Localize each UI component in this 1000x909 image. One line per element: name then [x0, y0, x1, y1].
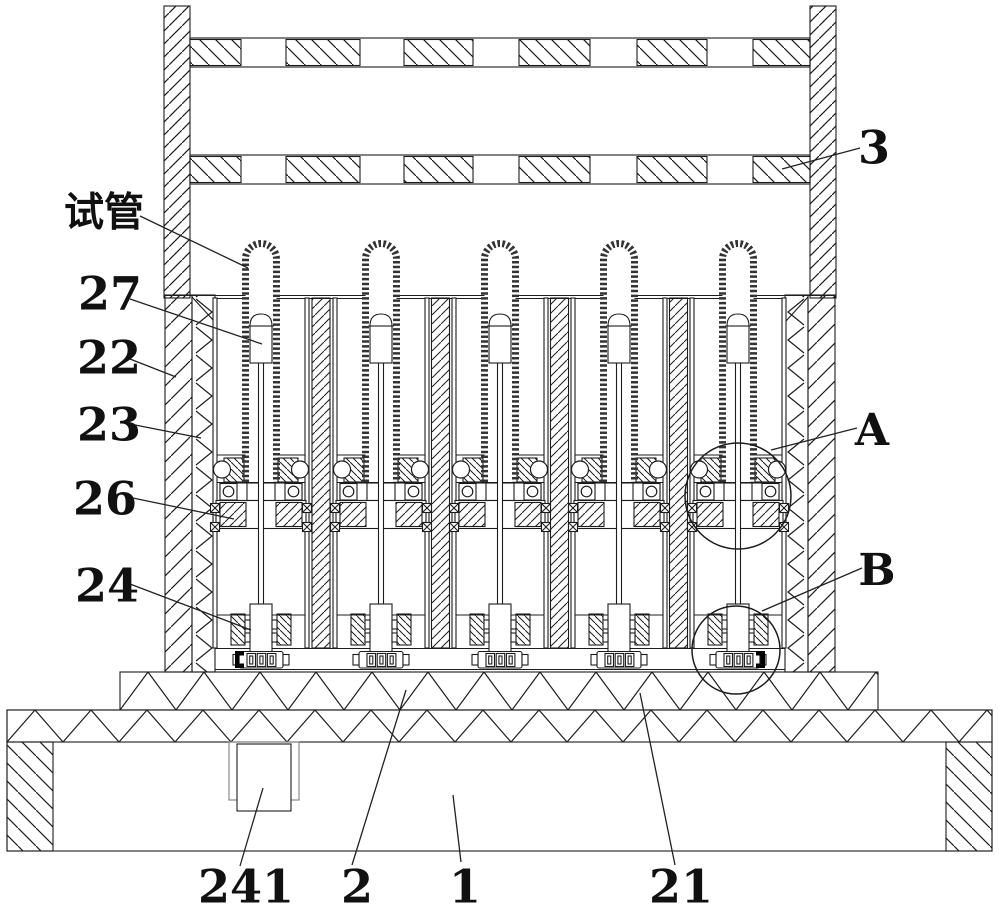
piston-rod: [379, 362, 384, 605]
drive-side-block: [589, 614, 603, 645]
piston-cap: [489, 314, 511, 326]
piston-body: [250, 326, 272, 363]
roller-ball: [214, 461, 231, 478]
roller-ball: [412, 461, 429, 478]
compartment-divider: [551, 298, 569, 648]
crossbar-top-hatched-segment: [753, 40, 810, 66]
base: [7, 710, 992, 851]
base-top-band: [7, 710, 992, 742]
motor-box: [237, 744, 291, 811]
platform: [120, 672, 878, 710]
label-A: A: [854, 405, 890, 456]
piston-body: [727, 326, 749, 363]
crossbar-top-hatched-segment: [190, 40, 241, 66]
roller-ball: [453, 461, 470, 478]
crossbar-top-hatched-segment: [286, 40, 360, 66]
crossbar-middle-hatched-segment: [753, 157, 810, 183]
drive-side-block: [635, 614, 649, 645]
piston-rod: [498, 362, 503, 605]
slide-housing-hatch: [515, 503, 541, 527]
slide-housing-hatch: [396, 503, 422, 527]
drive-block: [370, 604, 392, 652]
base-left-column: [7, 742, 53, 851]
crossbar-middle-hatched-segment: [404, 157, 473, 183]
drive-side-block: [470, 614, 484, 645]
tube-assembly-4: [569, 243, 670, 668]
label-23: 23: [77, 398, 141, 452]
drive-side-block: [277, 614, 291, 645]
drive-side-block: [351, 614, 365, 645]
crossbar-top-hatched-segment: [519, 40, 590, 66]
slide-housing-hatch: [459, 503, 485, 527]
label-test-tube: 试管: [64, 189, 144, 235]
compartment-divider: [312, 298, 330, 648]
label-27: 27: [78, 267, 142, 321]
tank-left-outer-wall: [165, 295, 192, 672]
frame-left-post: [164, 6, 190, 298]
compartment-divider: [670, 298, 688, 648]
label-3: 3: [858, 121, 890, 175]
roller-ball: [531, 461, 548, 478]
tube-assembly-2: [331, 243, 432, 668]
drive-block: [608, 604, 630, 652]
tube-assemblies: [211, 243, 789, 668]
slide-housing-hatch: [697, 503, 723, 527]
motor: [229, 742, 299, 811]
roller-ball: [769, 461, 786, 478]
drive-block: [489, 604, 511, 652]
slide-housing-hatch: [578, 503, 604, 527]
crossbar-middle: [190, 155, 810, 184]
frame-right-post: [810, 6, 836, 298]
roller-ball: [572, 461, 589, 478]
label-22: 22: [77, 331, 141, 385]
drive-block: [250, 604, 272, 652]
crossbar-middle-hatched-segment: [637, 157, 707, 183]
crossbar-top: [190, 38, 810, 67]
label-26: 26: [73, 472, 137, 526]
slide-housing-hatch: [276, 503, 302, 527]
crossbar-middle-hatched-segment: [190, 157, 241, 183]
drive-side-block: [231, 614, 245, 645]
piston-rod: [259, 362, 264, 605]
patent-figure-svg: 试管27222326243AB2412121: [0, 0, 1000, 909]
base-right-column: [946, 742, 992, 851]
label-1: 1: [449, 860, 481, 909]
label-241: 241: [198, 860, 294, 909]
piston-cap: [370, 314, 392, 326]
label-2: 2: [341, 860, 373, 909]
crossbar-middle-hatched-segment: [519, 157, 590, 183]
roller-ball: [292, 461, 309, 478]
crossbar-top-hatched-segment: [404, 40, 473, 66]
piston-body: [489, 326, 511, 363]
patent-figure: 试管27222326243AB2412121: [0, 0, 1000, 909]
drive-block: [727, 604, 749, 652]
label-test-tube-leader-line: [140, 216, 248, 268]
drive-side-block: [708, 614, 722, 645]
slide-housing-hatch: [753, 503, 779, 527]
drive-side-block: [516, 614, 530, 645]
piston-rod: [617, 362, 622, 605]
roller-ball: [334, 461, 351, 478]
slide-housing-hatch: [340, 503, 366, 527]
piston-cap: [608, 314, 630, 326]
drive-side-block: [397, 614, 411, 645]
roller-ball: [650, 461, 667, 478]
tank-right-outer-wall: [808, 295, 835, 672]
piston-cap: [250, 314, 272, 326]
compartment-divider: [432, 298, 450, 648]
piston-cap: [727, 314, 749, 326]
label-21: 21: [649, 860, 713, 909]
piston-rod: [736, 362, 741, 605]
slide-housing-hatch: [220, 503, 246, 527]
roller-ball: [691, 461, 708, 478]
tube-assembly-1: [211, 243, 312, 668]
piston-body: [608, 326, 630, 363]
label-B: B: [858, 545, 895, 596]
tank-right-liner: [785, 295, 808, 672]
slide-housing-hatch: [634, 503, 660, 527]
crossbar-middle-hatched-segment: [286, 157, 360, 183]
tube-assembly-3: [450, 243, 551, 668]
label-24: 24: [75, 559, 139, 613]
crossbar-top-hatched-segment: [637, 40, 707, 66]
piston-body: [370, 326, 392, 363]
